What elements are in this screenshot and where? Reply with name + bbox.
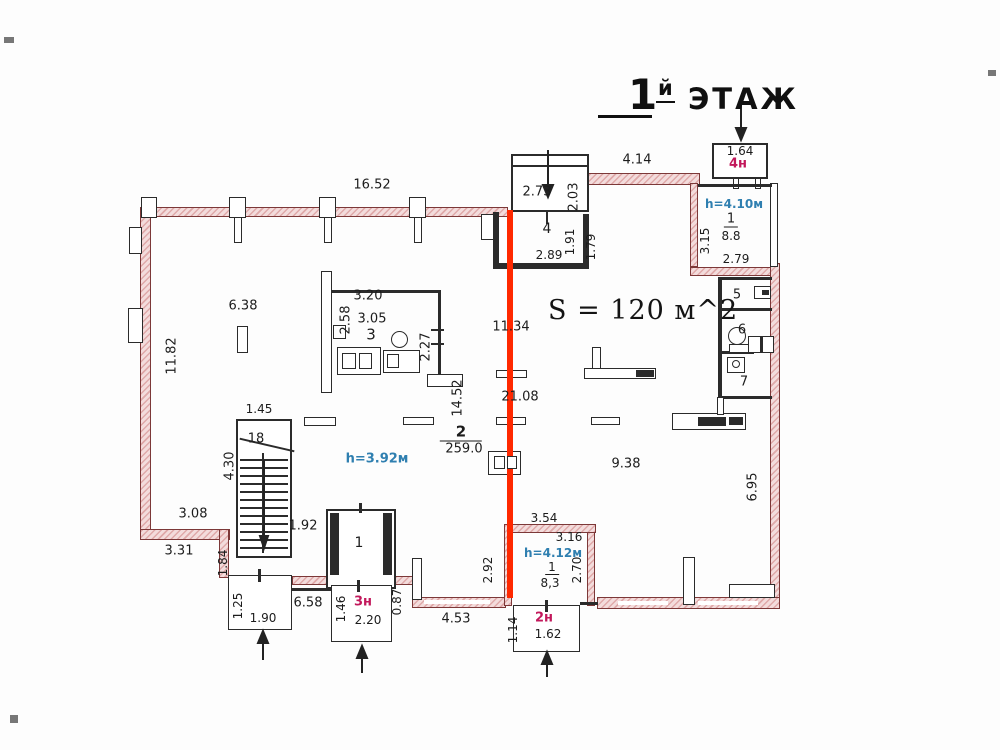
wall-room1-left: [690, 183, 698, 267]
room3-top-wall: [331, 290, 441, 293]
wall-stub-fill: [636, 370, 654, 377]
room7-number: 7: [740, 376, 748, 389]
room4-wall-left: [493, 212, 499, 268]
entrance-arrow-2n: [542, 652, 552, 677]
dim-9-38: 9.38: [612, 458, 641, 471]
dim-3-05: 3.05: [358, 313, 387, 326]
dim-3-15: 3.15: [699, 228, 711, 255]
wall-corridor-right: [394, 576, 413, 585]
dim-2-89: 2.89: [536, 249, 563, 261]
title-underline: [598, 115, 652, 118]
pilaster: [128, 308, 143, 343]
wall-room83-right: [587, 532, 595, 606]
column: [591, 417, 620, 425]
door-tick: [545, 600, 548, 612]
fixture-step: [427, 374, 463, 387]
exit-box-3n: [331, 585, 392, 642]
wall-connector: [717, 397, 724, 415]
column: [403, 417, 434, 425]
room3-right-wall: [438, 290, 441, 386]
pilaster: [409, 197, 426, 218]
dim-3-31: 3.31: [165, 545, 194, 558]
room4-number: 4: [543, 222, 552, 236]
sink-room7-bowl: [732, 360, 740, 368]
kitchen-sink: [342, 353, 356, 369]
pilaster-stub: [414, 217, 422, 243]
wall-corridor-left: [292, 576, 328, 585]
dim-3-54: 3.54: [531, 512, 558, 524]
column: [304, 417, 336, 426]
room4-wall-right: [583, 214, 589, 268]
room2-number: 2: [440, 425, 482, 442]
room83-number: 1: [545, 561, 559, 575]
height-room83: h=4.12м: [524, 547, 582, 559]
kitchen-sink: [359, 353, 372, 369]
wall-stub-fill: [729, 417, 743, 425]
dim-2-27: 2.27: [420, 333, 433, 362]
area-annotation: S = 120 м^2: [548, 295, 738, 326]
height-room1: h=4.10м: [705, 198, 763, 210]
window-slit: [424, 600, 490, 604]
kitchen-sink: [387, 354, 399, 368]
wc-block-top-wall: [718, 277, 772, 280]
dim-6-38: 6.38: [229, 300, 258, 313]
highlight-line: [507, 210, 513, 598]
dim-0-87: 0.87: [391, 589, 403, 616]
entrance-4n-box: [712, 143, 768, 179]
room1-number: 1: [724, 213, 738, 228]
toilet-room6-base: [729, 344, 749, 353]
wall-4-14: [588, 173, 700, 185]
pilaster: [141, 197, 157, 218]
dim-16-52: 16.52: [353, 179, 390, 192]
wall-bottom-left: [140, 529, 230, 540]
vestibule-inner-line: [511, 165, 589, 167]
wall-tick: [431, 343, 444, 345]
dim-1-91: 1.91: [564, 229, 576, 256]
wall-room83-top: [504, 524, 596, 533]
dim-1-45: 1.45: [246, 403, 273, 415]
wall-left: [140, 207, 151, 539]
corridor-line: [292, 588, 332, 591]
room83-area: 8,3: [540, 577, 559, 589]
pilaster: [319, 197, 336, 218]
fixture-room6-divider: [760, 337, 763, 352]
entrance-arrow-190: [258, 631, 268, 660]
fixture-room5-mark: [762, 290, 769, 295]
dim-2-92: 2.92: [482, 557, 494, 584]
floor-plan: 1 й ЭТАЖ S = 120 м^2 16.524.142.732.031.…: [0, 0, 1000, 750]
dim-4-30: 4.30: [224, 452, 237, 481]
elevator-wall: [383, 513, 392, 575]
wall-right: [770, 263, 780, 608]
pilaster-stub: [324, 217, 332, 243]
exit-box-2n: [513, 605, 580, 652]
duct-shaft: [321, 271, 332, 393]
room1-area: 8.8: [721, 230, 740, 242]
wall-tick: [546, 210, 548, 224]
column: [237, 326, 248, 353]
entrance-arrow-3n: [357, 646, 367, 673]
title-floor-word: ЭТАЖ: [688, 82, 799, 116]
wall-stub-fill: [698, 417, 726, 426]
wall-room1-bottom: [690, 267, 780, 276]
scan-artifact: [4, 37, 14, 43]
vestibule-box: [511, 154, 589, 212]
room1-top-line: [698, 184, 772, 187]
elevator-door-tick: [359, 503, 362, 513]
title-floor-suffix: й: [656, 76, 675, 103]
corridor-line: [580, 602, 598, 605]
wall-tick: [431, 329, 444, 331]
wc-block-bottom-wall: [718, 396, 772, 399]
window-slit: [618, 601, 668, 605]
staircase-divider: [262, 453, 264, 553]
scan-artifact: [10, 715, 18, 723]
elevator-wall: [330, 513, 339, 575]
window-slit: [698, 601, 758, 605]
room3-number: 3: [366, 328, 376, 343]
dim-11-82: 11.82: [166, 337, 179, 374]
toilet-room3: [391, 331, 408, 348]
pilaster: [229, 197, 246, 218]
title-floor-number: 1: [628, 70, 657, 119]
toilet-room6: [728, 327, 746, 345]
dim-6-95: 6.95: [747, 473, 760, 502]
pilaster: [129, 227, 142, 254]
pilaster-stub: [234, 217, 242, 243]
corner-step: [729, 584, 775, 598]
dim-2-70: 2.70: [571, 557, 583, 584]
staircase-steps: [240, 453, 288, 553]
door-tick: [258, 569, 261, 582]
dim-4-14: 4.14: [623, 154, 652, 167]
column: [412, 558, 422, 600]
wall-right-top: [770, 183, 778, 267]
electric-box-cell: [507, 456, 517, 469]
exit-box-190: [228, 575, 292, 630]
fixture-small-box: [333, 325, 346, 339]
dim-6-58: 6.58: [294, 597, 323, 610]
door-tick: [357, 580, 360, 592]
column: [683, 557, 695, 605]
wall-left-step: [219, 529, 229, 578]
dim-3-08: 3.08: [179, 508, 208, 521]
scan-artifact: [988, 70, 996, 76]
height-hall: h=3.92м: [346, 453, 409, 466]
dim-4-53: 4.53: [442, 613, 471, 626]
dim-2-79: 2.79: [723, 253, 750, 265]
dim-1-92: 1.92: [289, 520, 318, 533]
electric-box-cell: [494, 456, 505, 469]
room2-area: 259.0: [445, 443, 482, 456]
